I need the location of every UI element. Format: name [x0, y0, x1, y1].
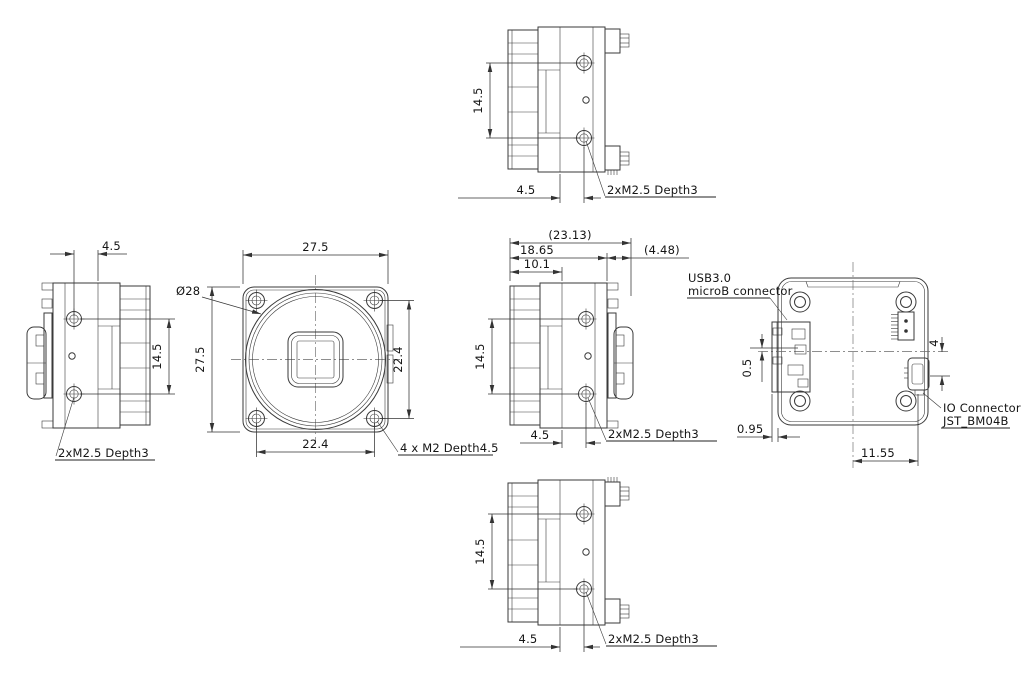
io-label-line1: IO Connector — [943, 401, 1021, 415]
top-view: 14.5 4.5 2xM2.5 Depth3 — [458, 27, 716, 203]
left-view-dimensions: 4.5 14.5 2xM2.5 Depth3 — [50, 239, 175, 460]
front-dim-mount-span-v: 22.4 — [391, 346, 405, 372]
top-dim-hole-offset: 4.5 — [517, 183, 536, 197]
front-view-dimensions: 27.5 Ø28 27.5 22.4 22.4 4 x M2 Depth4.5 — [176, 240, 499, 457]
io-connector — [904, 358, 929, 395]
left-side-view: 4.5 14.5 2xM2.5 Depth3 — [27, 239, 175, 460]
back-dim-usb-offset: 0.5 — [740, 359, 754, 378]
usb-label-line2: microB connector — [688, 284, 793, 298]
side-dim-connector-depth: (4.48) — [644, 243, 680, 257]
side-dim-total-depth: (23.13) — [548, 228, 591, 242]
left-dim-hole-span: 14.5 — [150, 343, 164, 369]
top-dim-hole-span: 14.5 — [471, 87, 485, 113]
back-view: USB3.0 microB connector 0.5 0.95 11.55 4… — [687, 262, 1021, 468]
drawing-canvas: 14.5 4.5 2xM2.5 Depth3 4.5 14.5 — [0, 0, 1030, 700]
bottom-label-screws: 2xM2.5 Depth3 — [608, 632, 699, 646]
right-side-view: (23.13) 18.65 (4.48) 10.1 14.5 4.5 2xM2.… — [473, 228, 717, 448]
side-dim-hole-offset: 4.5 — [531, 428, 550, 442]
back-dim-usb-protrusion: 0.95 — [737, 422, 763, 436]
front-dim-width: 27.5 — [302, 240, 328, 254]
camera-outline-drawing: 14.5 4.5 2xM2.5 Depth3 4.5 14.5 — [0, 0, 1030, 700]
front-dim-mount-span-h: 22.4 — [302, 437, 328, 451]
io-label-line2: JST_BM04B — [942, 414, 1009, 428]
side-label-screws: 2xM2.5 Depth3 — [608, 427, 699, 441]
usb-label-line1: USB3.0 — [688, 271, 731, 285]
back-dim-io-offset: 4 — [927, 339, 941, 347]
side-dim-hole-span: 14.5 — [473, 343, 487, 369]
top-label-screws: 2xM2.5 Depth3 — [607, 183, 698, 197]
front-view: 27.5 Ø28 27.5 22.4 22.4 4 x M2 Depth4.5 — [176, 240, 499, 457]
side-dim-front-depth: 10.1 — [524, 257, 550, 271]
back-view-dimensions: USB3.0 microB connector 0.5 0.95 11.55 4… — [687, 271, 1021, 466]
back-dim-io-span: 11.55 — [861, 446, 895, 460]
front-dim-lens-dia: Ø28 — [176, 284, 200, 298]
top-view-dimensions: 14.5 4.5 2xM2.5 Depth3 — [458, 63, 716, 203]
left-dim-hole-offset: 4.5 — [102, 239, 121, 253]
front-label-screws: 4 x M2 Depth4.5 — [400, 441, 499, 455]
left-label-screws: 2xM2.5 Depth3 — [58, 446, 149, 460]
front-dim-height: 27.5 — [193, 346, 207, 372]
side-dim-body-depth: 18.65 — [520, 243, 554, 257]
bottom-view: 14.5 4.5 2xM2.5 Depth3 — [460, 477, 717, 652]
bottom-dim-hole-span: 14.5 — [473, 538, 487, 564]
aux-connector-footprint — [891, 312, 914, 340]
bottom-dim-hole-offset: 4.5 — [519, 632, 538, 646]
